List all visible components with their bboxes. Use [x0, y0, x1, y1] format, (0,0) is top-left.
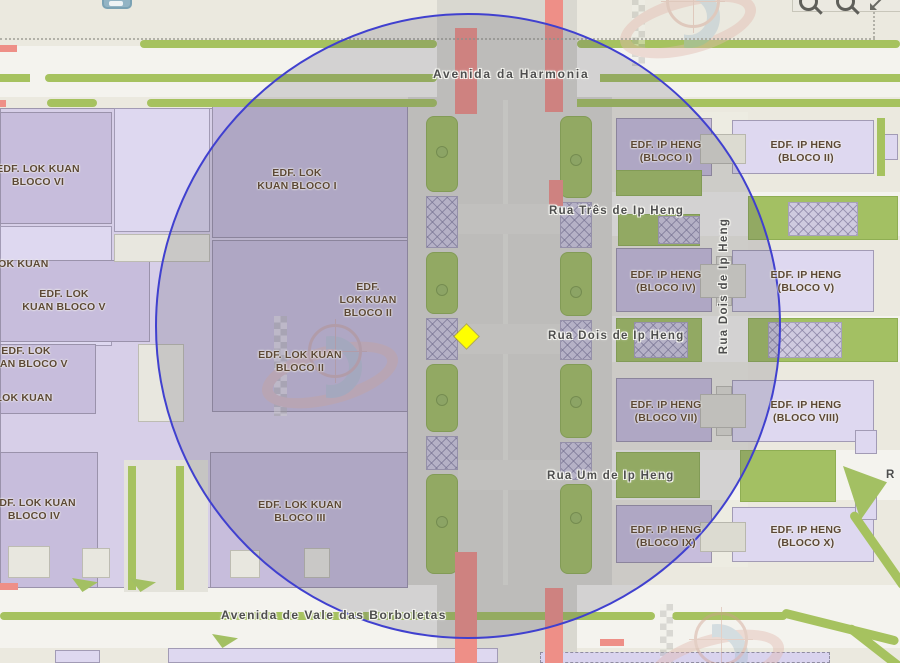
label-lok-kuan-bloco-vi: EDF. LOK KUAN BLOCO VI — [0, 163, 96, 189]
label-line: (BLOCO II) — [746, 152, 866, 165]
garden-strip — [877, 118, 885, 176]
label-lok-kuan-bloco-v-lower: EDF. LOK KUAN BLOCO V — [0, 345, 82, 371]
street-label-rua-tres: Rua Três de Ip Heng — [549, 205, 684, 217]
label-line: (BLOCO VII) — [606, 412, 726, 425]
red-road — [0, 583, 18, 590]
bus-stop-icon[interactable] — [102, 0, 132, 9]
label-ip-heng-bloco-x: EDF. IP HENG (BLOCO X) — [746, 524, 866, 550]
red-road — [600, 639, 624, 646]
label-lok-kuan: LOK KUAN — [0, 258, 56, 271]
building-block — [55, 650, 100, 663]
small-structure — [855, 430, 877, 454]
inner-road-green — [176, 466, 184, 590]
label-line: EDF. IP HENG — [606, 139, 726, 152]
label-line: EDF. IP HENG — [746, 399, 866, 412]
label-line: EDF. IP HENG — [606, 269, 726, 282]
red-road — [0, 100, 6, 107]
label-line: BLOCO III — [243, 512, 357, 525]
label-line: BLOCO VI — [0, 176, 96, 189]
label-lok-kuan-bloco-ii-upper: EDF. LOK KUAN BLOCO II — [320, 281, 416, 320]
label-line: (BLOCO IV) — [606, 282, 726, 295]
label-line: (BLOCO V) — [746, 282, 866, 295]
label-line: (BLOCO VIII) — [746, 412, 866, 425]
label-lok-kuan-bloco-ii-lower: EDF. LOK KUAN BLOCO II — [243, 349, 357, 375]
label-ip-heng-bloco-v: EDF. IP HENG (BLOCO V) — [746, 269, 866, 295]
label-line: (BLOCO I) — [606, 152, 726, 165]
label-line: EDF. LOK KUAN — [243, 349, 357, 362]
green-strip — [0, 74, 30, 82]
label-line: KUAN BLOCO V — [8, 301, 120, 314]
street-label-harmonia: Avenida da Harmonia — [433, 67, 589, 81]
map-canvas[interactable]: Avenida da Harmonia Rua Três de Ip Heng … — [0, 0, 900, 663]
label-ip-heng-bloco-ix: EDF. IP HENG (BLOCO IX) — [606, 524, 726, 550]
label-ip-heng-bloco-i: EDF. IP HENG (BLOCO I) — [606, 139, 726, 165]
green-strip — [672, 612, 787, 620]
street-label-rua-um: Rua Um de Ip Heng — [547, 470, 675, 482]
label-line: EDF. IP HENG — [746, 269, 866, 282]
label-line: BLOCO IV — [0, 510, 90, 523]
label-line: LOK KUAN — [320, 294, 416, 307]
label-line: EDF. LOK — [0, 345, 82, 358]
street-label-borboletas: Avenida de Vale das Borboletas — [221, 608, 447, 622]
label-line: BLOCO II — [243, 362, 357, 375]
label-line: EDF. — [320, 281, 416, 294]
label-line: KUAN BLOCO V — [0, 358, 82, 371]
street-label-rua-dois: Rua Dois de Ip Heng — [548, 330, 685, 342]
label-ip-heng-bloco-ii: EDF. IP HENG (BLOCO II) — [746, 139, 866, 165]
watermark-crosshair — [666, 0, 720, 28]
garden — [740, 450, 836, 502]
label-line: EDF. LOK KUAN — [0, 163, 96, 176]
label-line: EDF. IP HENG — [746, 139, 866, 152]
green-strip — [47, 99, 97, 107]
label-ip-heng-bloco-viii: EDF. IP HENG (BLOCO VIII) — [746, 399, 866, 425]
label-line: (BLOCO X) — [746, 537, 866, 550]
small-structure — [82, 548, 110, 578]
label-lok-kuan-bloco-v-upper: EDF. LOK KUAN BLOCO V — [8, 288, 120, 314]
playground-hatch — [788, 202, 858, 236]
label-line: KUAN BLOCO I — [240, 180, 354, 193]
label-line: BLOCO II — [320, 307, 416, 320]
label-line: EDF. LOK — [240, 167, 354, 180]
label-line: LOK KUAN — [0, 258, 56, 271]
label-line: EDF. IP HENG — [746, 524, 866, 537]
planned-building-dashed — [540, 652, 830, 663]
label-line: EDF. IP HENG — [606, 524, 726, 537]
label-line: EDF. IP HENG — [606, 399, 726, 412]
label-lok-kuan-bloco-iii: EDF. LOK KUAN BLOCO III — [243, 499, 357, 525]
inner-road-green — [128, 466, 136, 590]
green-strip — [577, 40, 900, 48]
street-label-cut-right: R — [886, 469, 896, 481]
label-line: EDF. LOK KUAN — [243, 499, 357, 512]
building-block — [168, 648, 498, 663]
label-line: EDF. LOK KUAN — [0, 497, 90, 510]
small-structure — [884, 134, 898, 160]
label-lok-kuan-bloco-i: EDF. LOK KUAN BLOCO I — [240, 167, 354, 193]
label-line: LOK KUAN — [0, 392, 60, 405]
label-line: EDF. LOK — [8, 288, 120, 301]
label-ip-heng-bloco-vii: EDF. IP HENG (BLOCO VII) — [606, 399, 726, 425]
label-lok-kuan-2: LOK KUAN — [0, 392, 60, 405]
arrowhead — [870, 3, 877, 10]
label-ip-heng-bloco-iv: EDF. IP HENG (BLOCO IV) — [606, 269, 726, 295]
label-lok-kuan-bloco-iv: EDF. LOK KUAN BLOCO IV — [0, 497, 90, 523]
label-line: (BLOCO IX) — [606, 537, 726, 550]
small-structure — [8, 546, 50, 578]
red-road — [0, 45, 17, 52]
expand-icon[interactable] — [870, 0, 890, 10]
